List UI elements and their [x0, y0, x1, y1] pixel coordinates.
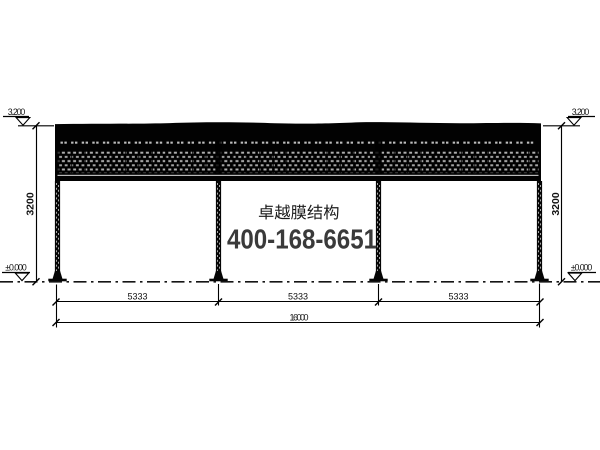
svg-text:±0.000: ±0.000: [5, 263, 27, 273]
svg-text:±0.000: ±0.000: [571, 263, 593, 273]
svg-text:5333: 5333: [449, 292, 469, 302]
svg-text:400-168-6651: 400-168-6651: [227, 224, 377, 255]
svg-text:16000: 16000: [290, 312, 309, 322]
svg-text:3200: 3200: [25, 192, 37, 216]
svg-text:3.200: 3.200: [572, 107, 590, 117]
svg-text:3.200: 3.200: [8, 107, 26, 117]
svg-text:5333: 5333: [288, 292, 308, 302]
svg-text:5333: 5333: [128, 292, 148, 302]
svg-text:3200: 3200: [550, 192, 562, 216]
